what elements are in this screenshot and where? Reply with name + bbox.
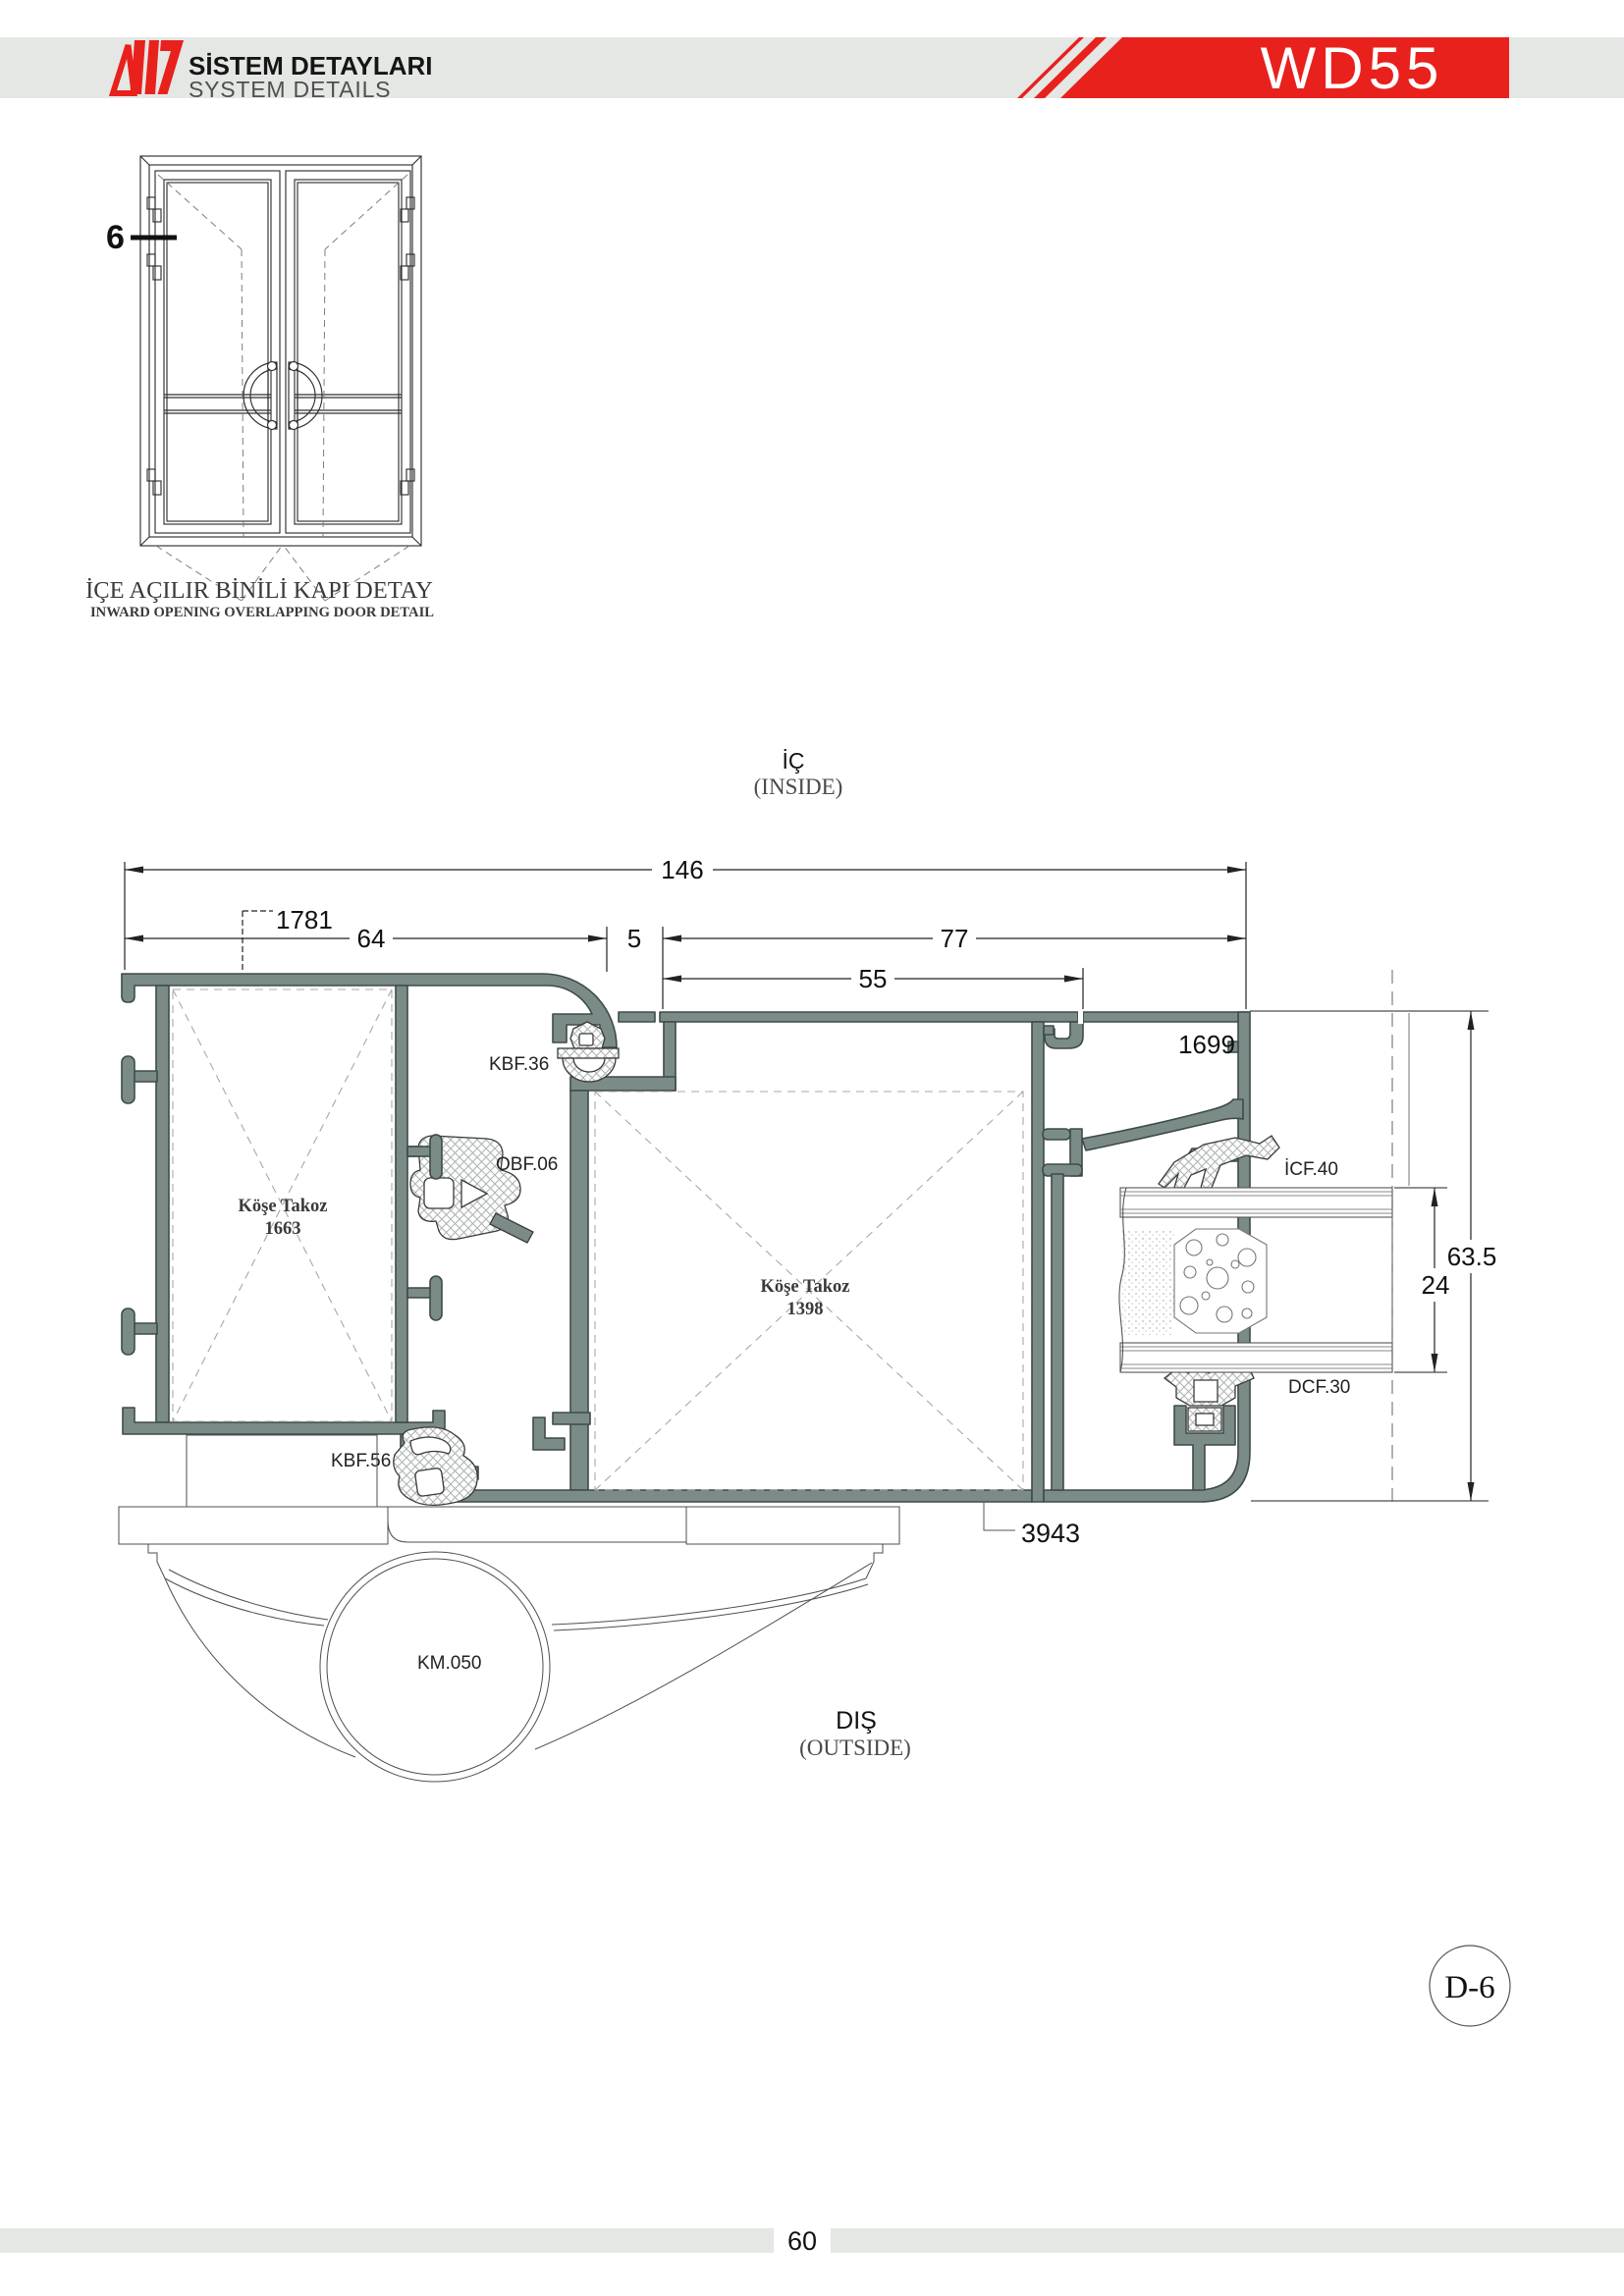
svg-text:63.5: 63.5 [1447,1242,1497,1271]
svg-text:Köşe Takoz: Köşe Takoz [761,1277,850,1297]
svg-text:6: 6 [106,219,125,256]
svg-text:İCF.40: İCF.40 [1284,1159,1338,1180]
svg-text:DIŞ: DIŞ [836,1707,877,1735]
svg-text:D-6: D-6 [1444,1970,1494,2005]
svg-text:(OUTSIDE): (OUTSIDE) [799,1735,911,1760]
svg-text:INWARD OPENING OVERLAPPING DOO: INWARD OPENING OVERLAPPING DOOR DETAIL [90,605,434,620]
svg-text:(INSIDE): (INSIDE) [754,774,843,799]
svg-text:DCF.30: DCF.30 [1288,1377,1350,1398]
svg-text:SYSTEM DETAILS: SYSTEM DETAILS [189,77,391,102]
svg-text:Köşe Takoz: Köşe Takoz [239,1197,328,1216]
svg-text:3943: 3943 [1021,1519,1080,1548]
svg-text:5: 5 [627,924,641,953]
svg-text:WD55: WD55 [1261,35,1444,101]
svg-text:55: 55 [859,964,888,993]
svg-text:1663: 1663 [265,1219,301,1239]
svg-text:İÇ: İÇ [783,748,805,774]
svg-text:KM.050: KM.050 [417,1653,481,1674]
svg-text:OBF.06: OBF.06 [496,1154,558,1175]
svg-text:1699: 1699 [1178,1030,1235,1059]
svg-text:77: 77 [941,924,969,953]
svg-text:KBF.36: KBF.36 [489,1054,549,1075]
svg-text:60: 60 [787,2226,817,2256]
svg-text:64: 64 [357,924,386,953]
svg-text:146: 146 [661,855,703,884]
svg-text:İÇE AÇILIR BİNİLİ KAPI DETAY: İÇE AÇILIR BİNİLİ KAPI DETAY [85,577,433,604]
svg-text:KBF.56: KBF.56 [331,1451,391,1471]
svg-text:1398: 1398 [787,1300,824,1319]
svg-text:1781: 1781 [276,905,333,934]
svg-text:24: 24 [1422,1270,1450,1300]
